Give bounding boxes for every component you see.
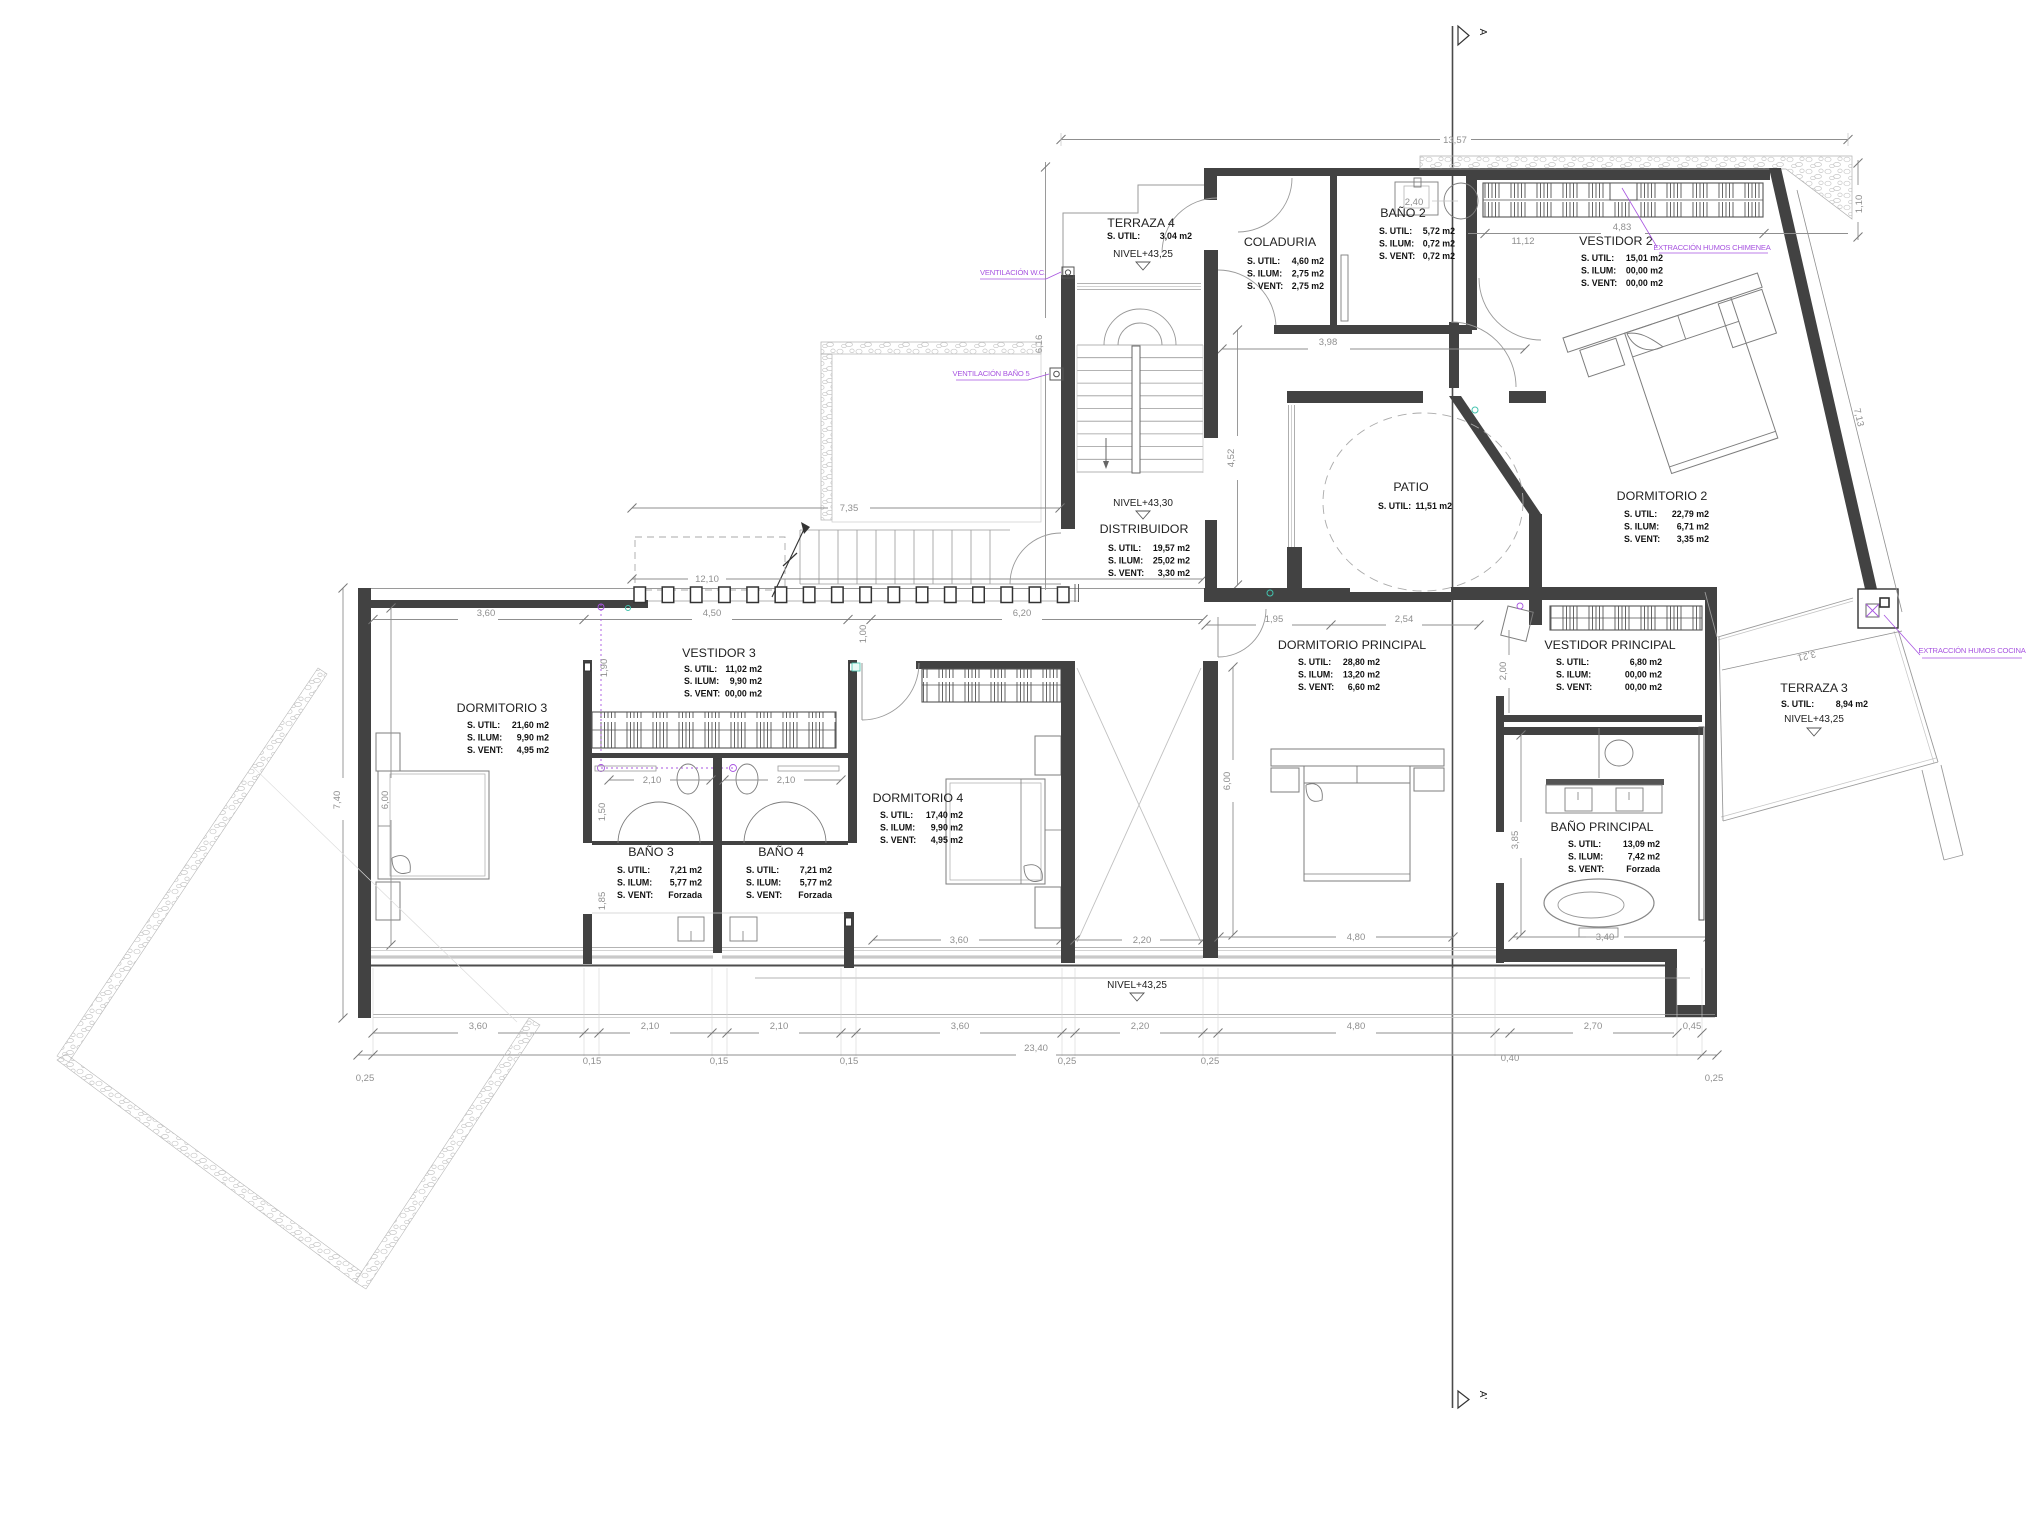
svg-text:S. UTIL:: S. UTIL: — [1298, 657, 1331, 667]
svg-text:2,20: 2,20 — [1133, 935, 1152, 946]
svg-text:11,12: 11,12 — [1511, 236, 1534, 247]
svg-text:DORMITORIO 3: DORMITORIO 3 — [457, 701, 548, 715]
svg-text:S. UTIL:: S. UTIL: — [1378, 501, 1411, 511]
svg-text:NIVEL+43,25: NIVEL+43,25 — [1113, 249, 1173, 260]
svg-text:1,00: 1,00 — [858, 625, 869, 644]
svg-text:4,83: 4,83 — [1613, 222, 1632, 233]
svg-text:4,52: 4,52 — [1226, 449, 1237, 468]
svg-text:7,40: 7,40 — [332, 791, 343, 810]
svg-text:3,60: 3,60 — [477, 608, 496, 619]
svg-text:0,15: 0,15 — [710, 1056, 729, 1067]
svg-text:4,95 m2: 4,95 m2 — [931, 835, 963, 845]
svg-text:S. VENT:: S. VENT: — [1556, 682, 1592, 692]
svg-text:2,20: 2,20 — [1131, 1021, 1150, 1032]
svg-text:Forzada: Forzada — [798, 890, 832, 900]
svg-text:6,20: 6,20 — [1013, 608, 1032, 619]
svg-text:25,02 m2: 25,02 m2 — [1153, 556, 1190, 566]
svg-text:2,75 m2: 2,75 m2 — [1292, 281, 1324, 291]
svg-text:VESTIDOR PRINCIPAL: VESTIDOR PRINCIPAL — [1544, 638, 1675, 652]
svg-text:S. VENT:: S. VENT: — [617, 890, 653, 900]
svg-text:00,00 m2: 00,00 m2 — [1625, 670, 1662, 680]
svg-text:0,25: 0,25 — [1705, 1073, 1724, 1084]
svg-text:BAÑO PRINCIPAL: BAÑO PRINCIPAL — [1550, 820, 1653, 834]
svg-text:BAÑO 4: BAÑO 4 — [758, 845, 804, 859]
svg-text:2,10: 2,10 — [641, 1021, 660, 1032]
svg-text:S. UTIL:: S. UTIL: — [746, 865, 779, 875]
svg-text:1,10: 1,10 — [1854, 195, 1865, 214]
svg-text:S. VENT:: S. VENT: — [746, 890, 782, 900]
svg-text:0,72 m2: 0,72 m2 — [1423, 251, 1455, 261]
svg-text:S. ILUM:: S. ILUM: — [467, 733, 502, 743]
svg-text:S. VENT:: S. VENT: — [1624, 534, 1660, 544]
svg-text:S. VENT:: S. VENT: — [880, 835, 916, 845]
svg-text:2,54: 2,54 — [1395, 614, 1414, 625]
svg-text:11,02 m2: 11,02 m2 — [725, 664, 762, 674]
svg-text:S. VENT:: S. VENT: — [1581, 278, 1617, 288]
svg-text:6,00: 6,00 — [380, 791, 391, 810]
svg-text:17,40 m2: 17,40 m2 — [926, 810, 963, 820]
svg-text:PATIO: PATIO — [1393, 480, 1429, 494]
svg-text:12,10: 12,10 — [695, 574, 719, 585]
svg-text:S. VENT:: S. VENT: — [1108, 568, 1144, 578]
svg-text:9,90 m2: 9,90 m2 — [517, 733, 549, 743]
svg-text:00,00 m2: 00,00 m2 — [1625, 682, 1662, 692]
svg-text:VENTILACIÓN W.C.: VENTILACIÓN W.C. — [980, 268, 1046, 277]
svg-text:BAÑO 3: BAÑO 3 — [628, 845, 674, 859]
svg-text:S. UTIL:: S. UTIL: — [880, 810, 913, 820]
svg-text:3,35 m2: 3,35 m2 — [1677, 534, 1709, 544]
svg-text:11,51 m2: 11,51 m2 — [1415, 501, 1452, 511]
svg-text:4,50: 4,50 — [703, 608, 722, 619]
svg-text:1,90: 1,90 — [599, 659, 610, 678]
svg-text:6,00: 6,00 — [1222, 772, 1233, 791]
svg-text:5,77 m2: 5,77 m2 — [670, 878, 702, 888]
svg-text:6,71 m2: 6,71 m2 — [1677, 522, 1709, 532]
svg-text:S. UTIL:: S. UTIL: — [1247, 256, 1280, 266]
svg-text:00,00 m2: 00,00 m2 — [1626, 278, 1663, 288]
svg-text:S. ILUM:: S. ILUM: — [1568, 852, 1603, 862]
svg-text:0,25: 0,25 — [1058, 1056, 1077, 1067]
svg-text:A': A' — [1477, 1391, 1488, 1400]
svg-text:15,01 m2: 15,01 m2 — [1626, 253, 1663, 263]
svg-text:3,60: 3,60 — [469, 1021, 488, 1032]
svg-text:3,60: 3,60 — [950, 935, 969, 946]
svg-text:NIVEL+43,30: NIVEL+43,30 — [1113, 498, 1173, 509]
svg-text:DISTRIBUIDOR: DISTRIBUIDOR — [1100, 522, 1189, 536]
svg-text:2,70: 2,70 — [1584, 1021, 1603, 1032]
svg-text:3,85: 3,85 — [1510, 831, 1521, 850]
svg-text:00,00 m2: 00,00 m2 — [1626, 266, 1663, 276]
svg-text:S. VENT:: S. VENT: — [1247, 281, 1283, 291]
svg-text:S. VENT:: S. VENT: — [1379, 251, 1415, 261]
svg-text:2,10: 2,10 — [770, 1021, 789, 1032]
svg-text:VESTIDOR 2: VESTIDOR 2 — [1579, 234, 1653, 248]
svg-text:3,40: 3,40 — [1596, 932, 1615, 943]
svg-text:6,60 m2: 6,60 m2 — [1348, 682, 1380, 692]
svg-text:1,50: 1,50 — [597, 803, 608, 822]
svg-text:S. VENT:: S. VENT: — [1298, 682, 1334, 692]
svg-text:1,85: 1,85 — [597, 892, 608, 911]
svg-text:8,94 m2: 8,94 m2 — [1836, 699, 1868, 709]
svg-text:DORMITORIO 4: DORMITORIO 4 — [873, 791, 964, 805]
svg-text:S. ILUM:: S. ILUM: — [1379, 239, 1414, 249]
svg-text:5,72 m2: 5,72 m2 — [1423, 226, 1455, 236]
svg-text:COLADURIA: COLADURIA — [1244, 235, 1317, 249]
svg-text:Forzada: Forzada — [668, 890, 702, 900]
svg-text:S. VENT:: S. VENT: — [684, 688, 720, 698]
svg-text:S. ILUM:: S. ILUM: — [1581, 266, 1616, 276]
svg-text:3,04 m2: 3,04 m2 — [1160, 231, 1192, 241]
svg-text:S. UTIL:: S. UTIL: — [1107, 231, 1140, 241]
svg-text:S. UTIL:: S. UTIL: — [1781, 699, 1814, 709]
svg-text:7,35: 7,35 — [840, 503, 859, 514]
svg-text:4,60 m2: 4,60 m2 — [1292, 256, 1324, 266]
svg-text:3,60: 3,60 — [951, 1021, 970, 1032]
svg-text:EXTRACCIÓN HUMOS COCINA: EXTRACCIÓN HUMOS COCINA — [1918, 646, 2026, 655]
svg-text:0,45: 0,45 — [1683, 1021, 1702, 1032]
svg-text:4,80: 4,80 — [1347, 932, 1366, 943]
svg-text:0,25: 0,25 — [356, 1073, 375, 1084]
svg-text:S. ILUM:: S. ILUM: — [1247, 269, 1282, 279]
svg-text:2,00: 2,00 — [1498, 662, 1509, 681]
svg-text:S. ILUM:: S. ILUM: — [617, 878, 652, 888]
svg-text:22,79 m2: 22,79 m2 — [1672, 509, 1709, 519]
svg-text:DORMITORIO 2: DORMITORIO 2 — [1617, 489, 1708, 503]
svg-text:1,95: 1,95 — [1265, 614, 1284, 625]
svg-text:6,80 m2: 6,80 m2 — [1630, 657, 1662, 667]
svg-text:S. ILUM:: S. ILUM: — [1108, 556, 1143, 566]
svg-text:S. VENT:: S. VENT: — [467, 745, 503, 755]
svg-text:23,40: 23,40 — [1024, 1043, 1048, 1054]
svg-text:TERRAZA 4: TERRAZA 4 — [1107, 216, 1175, 230]
svg-text:0,72 m2: 0,72 m2 — [1423, 239, 1455, 249]
svg-text:19,57 m2: 19,57 m2 — [1153, 543, 1190, 553]
svg-text:S. ILUM:: S. ILUM: — [1624, 522, 1659, 532]
svg-text:13,20 m2: 13,20 m2 — [1343, 670, 1380, 680]
svg-text:S. ILUM:: S. ILUM: — [746, 878, 781, 888]
svg-text:21,60 m2: 21,60 m2 — [512, 720, 549, 730]
svg-text:TERRAZA 3: TERRAZA 3 — [1780, 681, 1848, 695]
svg-text:S. UTIL:: S. UTIL: — [1568, 839, 1601, 849]
svg-text:NIVEL+43,25: NIVEL+43,25 — [1784, 714, 1844, 725]
svg-text:S. UTIL:: S. UTIL: — [1624, 509, 1657, 519]
svg-text:0,15: 0,15 — [840, 1056, 859, 1067]
svg-text:S. ILUM:: S. ILUM: — [880, 823, 915, 833]
svg-text:3,98: 3,98 — [1319, 337, 1338, 348]
svg-text:S. ILUM:: S. ILUM: — [684, 676, 719, 686]
svg-text:4,80: 4,80 — [1347, 1021, 1366, 1032]
svg-text:S. ILUM:: S. ILUM: — [1556, 670, 1591, 680]
svg-text:0,25: 0,25 — [1201, 1056, 1220, 1067]
svg-text:0,40: 0,40 — [1501, 1053, 1520, 1064]
svg-text:VESTIDOR 3: VESTIDOR 3 — [682, 646, 756, 660]
svg-text:S. UTIL:: S. UTIL: — [1556, 657, 1589, 667]
svg-text:00,00 m2: 00,00 m2 — [725, 688, 762, 698]
svg-text:S. UTIL:: S. UTIL: — [617, 865, 650, 875]
svg-text:VENTILACIÓN BAÑO 5: VENTILACIÓN BAÑO 5 — [953, 369, 1030, 378]
svg-text:S. VENT:: S. VENT: — [1568, 864, 1604, 874]
svg-text:13,09 m2: 13,09 m2 — [1623, 839, 1660, 849]
svg-text:3,30 m2: 3,30 m2 — [1158, 568, 1190, 578]
svg-text:S. UTIL:: S. UTIL: — [1581, 253, 1614, 263]
svg-text:S. UTIL:: S. UTIL: — [684, 664, 717, 674]
svg-text:Forzada: Forzada — [1626, 864, 1660, 874]
svg-text:S. UTIL:: S. UTIL: — [467, 720, 500, 730]
svg-text:2,75 m2: 2,75 m2 — [1292, 269, 1324, 279]
svg-text:13,57: 13,57 — [1443, 135, 1467, 146]
svg-text:A: A — [1477, 29, 1488, 36]
svg-text:7,21 m2: 7,21 m2 — [800, 865, 832, 875]
svg-text:5,77 m2: 5,77 m2 — [800, 878, 832, 888]
svg-text:7,21 m2: 7,21 m2 — [670, 865, 702, 875]
svg-text:4,95 m2: 4,95 m2 — [517, 745, 549, 755]
svg-text:NIVEL+43,25: NIVEL+43,25 — [1107, 980, 1167, 991]
svg-text:9,90 m2: 9,90 m2 — [730, 676, 762, 686]
svg-text:S. ILUM:: S. ILUM: — [1298, 670, 1333, 680]
svg-text:2,10: 2,10 — [643, 775, 662, 786]
svg-text:0,15: 0,15 — [583, 1056, 602, 1067]
svg-text:BAÑO 2: BAÑO 2 — [1380, 206, 1426, 220]
svg-text:EXTRACCIÓN HUMOS CHIMENEA: EXTRACCIÓN HUMOS CHIMENEA — [1653, 243, 1771, 252]
svg-text:2,10: 2,10 — [777, 775, 796, 786]
svg-text:7,42 m2: 7,42 m2 — [1628, 852, 1660, 862]
svg-text:28,80 m2: 28,80 m2 — [1343, 657, 1380, 667]
svg-text:S. UTIL:: S. UTIL: — [1379, 226, 1412, 236]
svg-text:DORMITORIO PRINCIPAL: DORMITORIO PRINCIPAL — [1278, 638, 1426, 652]
svg-text:S. UTIL:: S. UTIL: — [1108, 543, 1141, 553]
svg-text:9,90 m2: 9,90 m2 — [931, 823, 963, 833]
